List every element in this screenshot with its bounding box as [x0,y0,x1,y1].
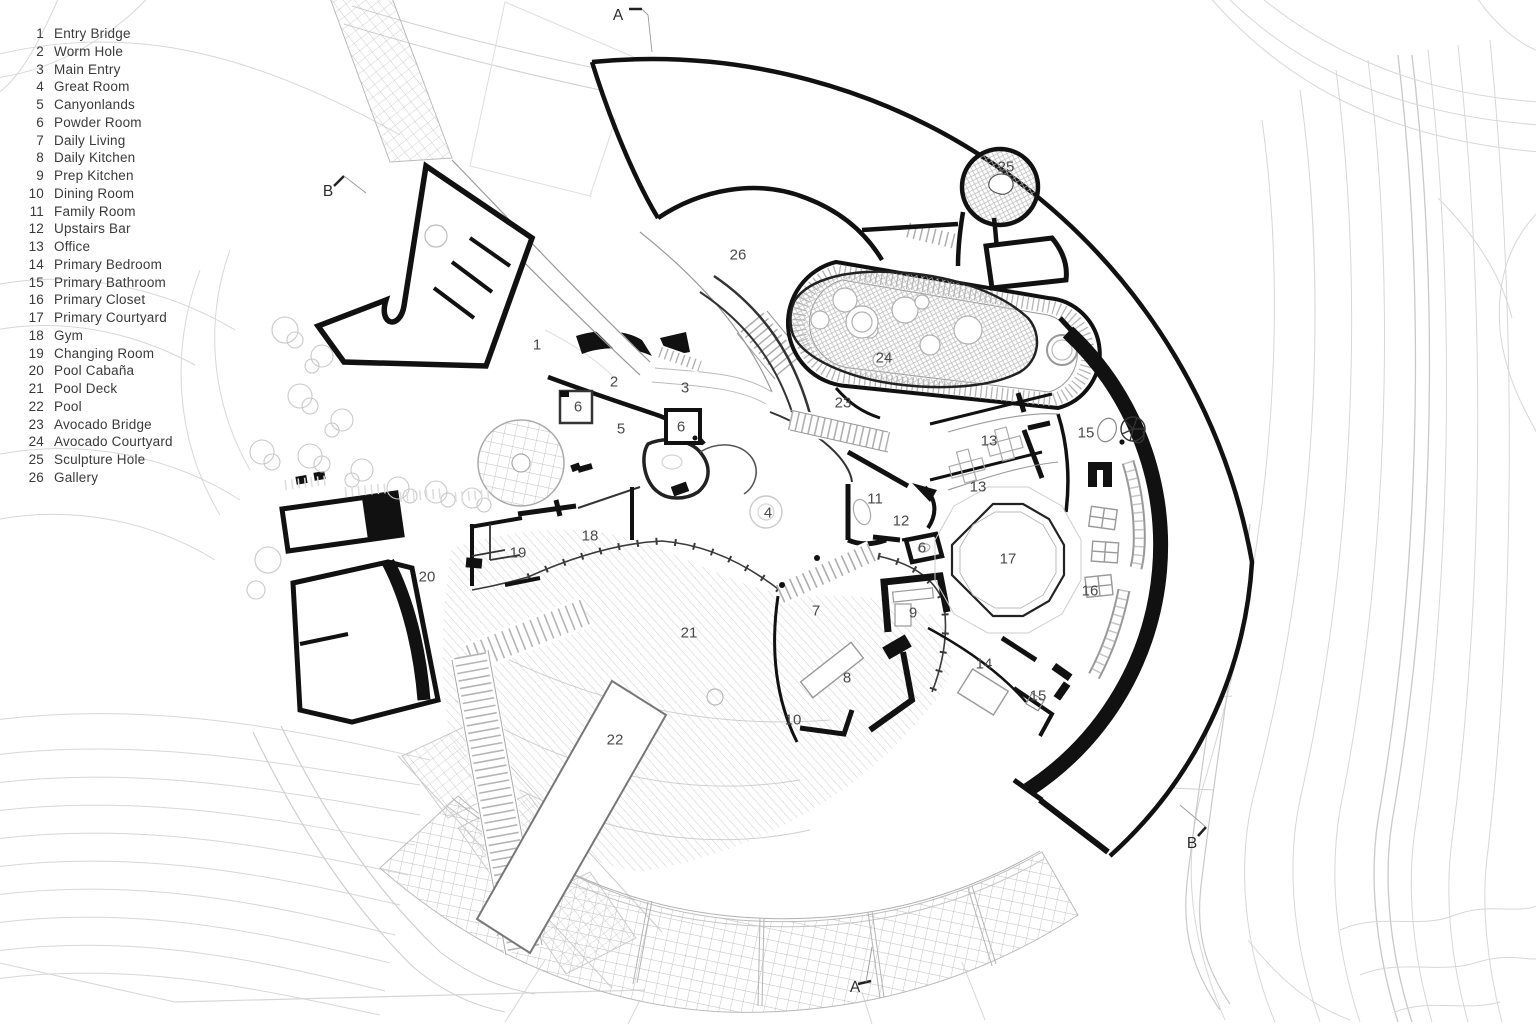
legend-item-number: 25 [20,451,44,469]
legend-item-number: 21 [20,380,44,398]
legend-item-label: Family Room [54,203,136,221]
plan-room-number-primary-bedroom: 14 [976,656,993,673]
plan-room-number-main-entry: 3 [681,380,689,397]
legend-item: 2Worm Hole [20,43,173,61]
legend-item-label: Main Entry [54,61,121,79]
plan-room-number-worm-hole: 2 [610,374,618,391]
legend-item-label: Pool [54,398,82,416]
legend-item-label: Office [54,238,90,256]
legend-item: 20Pool Cabaña [20,362,173,380]
legend-item: 11Family Room [20,203,173,221]
legend-item-number: 23 [20,416,44,434]
legend-item-label: Pool Cabaña [54,362,134,380]
section-marker-a: A [613,7,623,25]
plan-room-number-gym: 18 [582,528,599,545]
plan-room-number-primary-courtyard: 17 [1000,551,1017,568]
legend-item-number: 17 [20,309,44,327]
legend-item: 10Dining Room [20,185,173,203]
legend-item: 24Avocado Courtyard [20,433,173,451]
legend-item-number: 12 [20,220,44,238]
legend-item-label: Gym [54,327,83,345]
plan-room-number-powder-room: 6 [677,419,685,436]
legend-item-number: 6 [20,114,44,132]
plan-room-number-primary-closet: 16 [1082,583,1099,600]
legend-item: 22Pool [20,398,173,416]
plan-room-number-primary-bathroom: 15 [1078,425,1095,442]
legend-item: 15Primary Bathroom [20,274,173,292]
legend-item: 21Pool Deck [20,380,173,398]
plan-room-number-prep-kitchen: 9 [909,605,917,622]
section-marker-b: B [1187,835,1197,853]
plan-room-number-family-room: 11 [867,491,883,508]
legend-item: 6Powder Room [20,114,173,132]
legend-item: 18Gym [20,327,173,345]
legend-item: 9Prep Kitchen [20,167,173,185]
plan-room-number-canyonlands: 5 [617,421,625,438]
plan-room-number-office: 13 [981,433,998,450]
legend-item-label: Avocado Courtyard [54,433,173,451]
legend-item: 17Primary Courtyard [20,309,173,327]
legend-item-label: Sculpture Hole [54,451,145,469]
plan-room-number-pool-caba-a: 20 [419,569,436,586]
plan-room-number-daily-living: 7 [812,603,820,620]
legend-item: 16Primary Closet [20,291,173,309]
legend-item-number: 2 [20,43,44,61]
legend-item-number: 22 [20,398,44,416]
legend-item-label: Upstairs Bar [54,220,131,238]
legend-item-label: Great Room [54,78,130,96]
plan-room-number-gallery: 26 [730,247,747,264]
legend-item: 13Office [20,238,173,256]
legend-item: 7Daily Living [20,132,173,150]
legend-item-number: 15 [20,274,44,292]
legend-item: 3Main Entry [20,61,173,79]
legend-item-label: Changing Room [54,345,154,363]
legend-item-label: Canyonlands [54,96,135,114]
legend-item-number: 10 [20,185,44,203]
legend-item-label: Daily Kitchen [54,149,135,167]
plan-room-number-avocado-courtyard: 24 [876,350,893,367]
legend-item-label: Powder Room [54,114,142,132]
legend-item-label: Pool Deck [54,380,117,398]
legend-item-label: Daily Living [54,132,125,150]
plan-room-number-avocado-bridge: 23 [835,395,852,412]
plan-room-number-changing-room: 19 [510,545,527,562]
legend-item: 23Avocado Bridge [20,416,173,434]
legend-item: 19Changing Room [20,345,173,363]
plan-room-number-pool-deck: 21 [681,625,698,642]
legend-item-number: 8 [20,149,44,167]
legend-item: 8Daily Kitchen [20,149,173,167]
legend-item-label: Gallery [54,469,98,487]
legend-item: 5Canyonlands [20,96,173,114]
legend-item-number: 13 [20,238,44,256]
legend-item: 26Gallery [20,469,173,487]
legend-item-number: 9 [20,167,44,185]
plan-room-number-dining-room: 10 [785,712,802,729]
legend-item-number: 19 [20,345,44,363]
legend-item: 1Entry Bridge [20,25,173,43]
legend-item-number: 26 [20,469,44,487]
legend-item-number: 1 [20,25,44,43]
legend-item-number: 20 [20,362,44,380]
legend-item-number: 5 [20,96,44,114]
legend-item-number: 18 [20,327,44,345]
legend-item-label: Avocado Bridge [54,416,152,434]
legend-item-label: Entry Bridge [54,25,131,43]
legend-item-label: Primary Closet [54,291,145,309]
legend-item: 12Upstairs Bar [20,220,173,238]
legend-item-number: 11 [20,203,44,221]
legend-item: 25Sculpture Hole [20,451,173,469]
plan-room-number-office: 13 [970,479,987,496]
legend: 1Entry Bridge2Worm Hole3Main Entry4Great… [20,25,173,487]
legend-item-number: 7 [20,132,44,150]
floor-plan-page: 1Entry Bridge2Worm Hole3Main Entry4Great… [0,0,1536,1025]
legend-item-label: Primary Bathroom [54,274,166,292]
legend-item-label: Primary Courtyard [54,309,167,327]
legend-item-label: Primary Bedroom [54,256,162,274]
legend-item-number: 3 [20,61,44,79]
section-marker-b: B [323,183,333,201]
plan-room-number-primary-bathroom: 15 [1030,688,1047,705]
legend-item-number: 4 [20,78,44,96]
plan-room-number-upstairs-bar: 12 [893,513,910,530]
legend-item-label: Worm Hole [54,43,123,61]
legend-item-label: Prep Kitchen [54,167,134,185]
legend-item-label: Dining Room [54,185,134,203]
plan-room-number-sculpture-hole: 25 [998,159,1015,176]
plan-room-number-pool: 22 [607,732,624,749]
plan-room-number-entry-bridge: 1 [533,337,541,354]
garage-and-entry-bridge [318,0,650,375]
plan-room-number-great-room: 4 [764,505,772,522]
legend-item-number: 14 [20,256,44,274]
legend-item: 4Great Room [20,78,173,96]
legend-item: 14Primary Bedroom [20,256,173,274]
legend-item-number: 24 [20,433,44,451]
section-marker-a: A [850,979,860,997]
plan-room-number-daily-kitchen: 8 [843,670,851,687]
legend-item-number: 16 [20,291,44,309]
plan-room-number-powder-room: 6 [574,399,582,416]
plan-room-number-powder-room: 6 [918,540,926,557]
